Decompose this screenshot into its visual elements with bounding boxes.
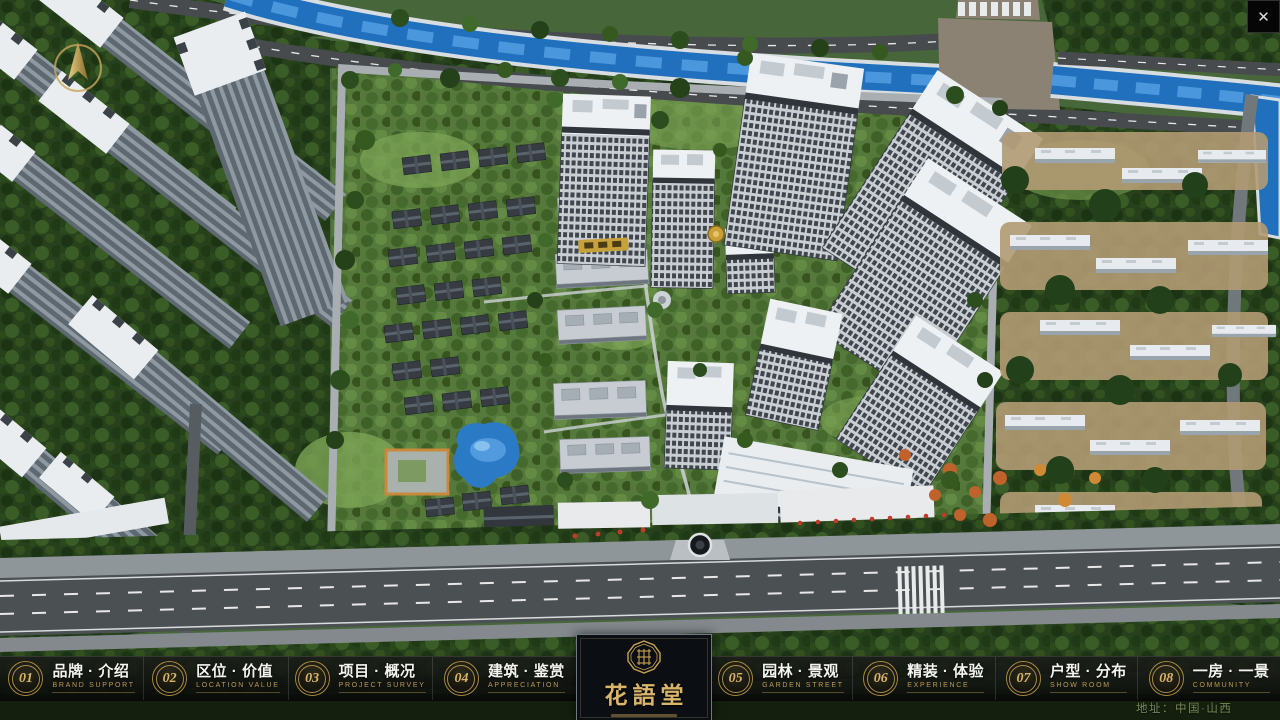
- nav-badge-06-icon: 06: [863, 661, 898, 696]
- nav-item-brand-intro[interactable]: 01 品牌 · 介绍 BRAND SUPPORT: [0, 657, 143, 700]
- nav-label-zh: 精装 · 体验: [907, 664, 984, 681]
- nav-label-zh: 一房 · 一景: [1193, 664, 1270, 681]
- seal-emblem-icon: [627, 640, 661, 674]
- project-logo-title: 花語堂: [600, 676, 689, 710]
- nav-label-en: PROJECT SURVEY: [339, 682, 426, 693]
- nav-badge-01-icon: 01: [8, 661, 43, 696]
- masterplan-render: [0, 0, 1280, 720]
- nav-label-zh: 建筑 · 鉴赏: [488, 664, 565, 681]
- close-button[interactable]: ✕: [1247, 0, 1280, 33]
- nav-label-zh: 园林 · 景观: [762, 664, 844, 681]
- nav-item-floorplan-distribution[interactable]: 07 户型 · 分布 SHOW ROOM: [995, 657, 1138, 700]
- nav-label-en: APPRECIATION: [488, 682, 565, 693]
- nav-item-project-survey[interactable]: 03 项目 · 概况 PROJECT SURVEY: [288, 657, 432, 700]
- compass-north-icon: [48, 34, 108, 98]
- nav-label-en: SHOW ROOM: [1050, 682, 1127, 693]
- nav-badge-03-icon: 03: [295, 661, 330, 696]
- nav-label-zh: 户型 · 分布: [1050, 664, 1127, 681]
- nav-label-en: BRAND SUPPORT: [52, 682, 134, 693]
- nav-label-zh: 项目 · 概况: [339, 664, 426, 681]
- nav-badge-02-icon: 02: [152, 661, 187, 696]
- nav-group-left: 01 品牌 · 介绍 BRAND SUPPORT 02 区位 · 价值 LOCA…: [0, 657, 576, 700]
- nav-badge-05-icon: 05: [718, 661, 753, 696]
- nav-badge-08-icon: 08: [1149, 661, 1184, 696]
- logo-panel: 花語堂: [576, 634, 712, 720]
- nav-label-en: EXPERIENCE: [907, 682, 984, 693]
- nav-group-right: 05 园林 · 景观 GARDEN STREET 06 精装 · 体验 EXPE…: [710, 657, 1280, 700]
- presentation-screen: ✕ 01 品牌 · 介绍 BRAND SUPPORT 02 区位 · 价值 LO…: [0, 0, 1280, 720]
- nav-item-decoration-experience[interactable]: 06 精装 · 体验 EXPERIENCE: [852, 657, 995, 700]
- nav-item-room-view[interactable]: 08 一房 · 一景 COMMUNITY: [1137, 657, 1280, 700]
- nav-label-en: LOCATION VALUE: [196, 682, 279, 693]
- nav-badge-07-icon: 07: [1006, 661, 1041, 696]
- nav-item-location-value[interactable]: 02 区位 · 价值 LOCATION VALUE: [143, 657, 287, 700]
- nav-item-architecture[interactable]: 04 建筑 · 鉴赏 APPRECIATION: [432, 657, 576, 700]
- nav-label-zh: 区位 · 价值: [196, 664, 279, 681]
- nav-label-en: COMMUNITY: [1193, 682, 1270, 693]
- nav-label-zh: 品牌 · 介绍: [52, 664, 134, 681]
- project-logo-subtext: [611, 714, 677, 717]
- nav-badge-04-icon: 04: [444, 661, 479, 696]
- nav-item-garden-landscape[interactable]: 05 园林 · 景观 GARDEN STREET: [710, 657, 852, 700]
- address-text: 地址：中国·山西: [1136, 700, 1232, 716]
- nav-label-en: GARDEN STREET: [762, 682, 844, 693]
